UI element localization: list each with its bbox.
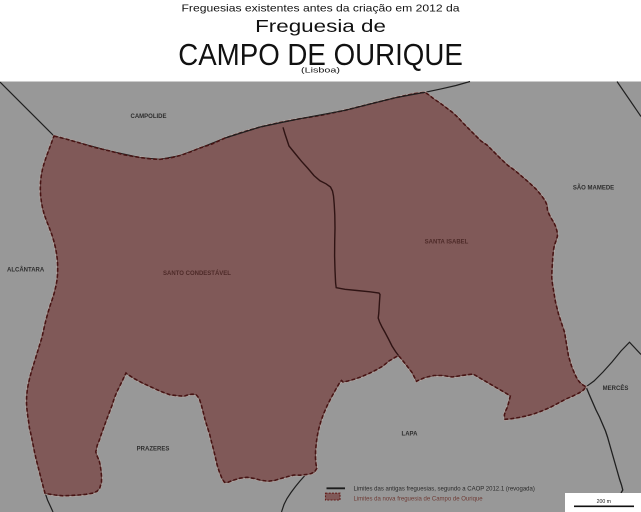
svg-text:PRAZERES: PRAZERES xyxy=(137,447,170,453)
svg-text:ALCÂNTARA: ALCÂNTARA xyxy=(7,266,45,273)
svg-text:Limites da nova freguesia de C: Limites da nova freguesia de Campo de Ou… xyxy=(354,497,484,503)
svg-text:CAMPOLIDE: CAMPOLIDE xyxy=(131,114,167,120)
svg-text:MERCÊS: MERCÊS xyxy=(603,384,629,392)
svg-text:SÃO MAMEDE: SÃO MAMEDE xyxy=(573,185,614,192)
svg-text:LAPA: LAPA xyxy=(402,432,419,438)
svg-text:Freguesias existentes antes da: Freguesias existentes antes da criação e… xyxy=(182,3,461,14)
svg-text:(Lisboa): (Lisboa) xyxy=(301,66,340,74)
svg-text:200 m: 200 m xyxy=(597,499,611,505)
svg-text:Limites das antigas freguesias: Limites das antigas freguesias, segundo … xyxy=(354,487,535,493)
svg-text:SANTA ISABEL: SANTA ISABEL xyxy=(425,239,469,245)
svg-text:Freguesia de: Freguesia de xyxy=(255,17,386,36)
svg-text:SANTO CONDESTÁVEL: SANTO CONDESTÁVEL xyxy=(163,270,231,277)
